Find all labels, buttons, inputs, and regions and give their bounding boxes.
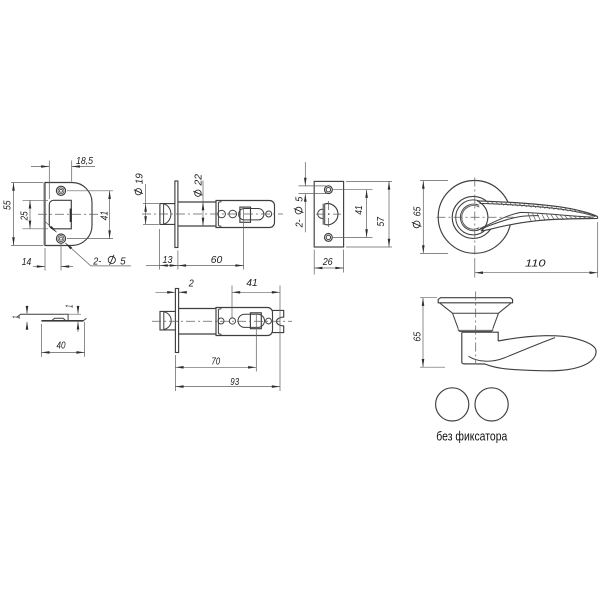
svg-text:без фиксатора: без фиксатора [436,428,508,443]
svg-text:41: 41 [100,211,111,221]
svg-text:26: 26 [322,257,333,268]
svg-text:25: 25 [20,211,31,221]
svg-text:13: 13 [163,255,173,266]
svg-text:65: 65 [412,332,423,342]
svg-text:1: 1 [64,305,75,309]
svg-text:14: 14 [22,257,32,268]
svg-text:93: 93 [230,377,239,388]
svg-text:5: 5 [120,256,126,267]
svg-text:55: 55 [3,200,14,210]
svg-text:60: 60 [211,255,223,266]
svg-text:65: 65 [412,206,423,216]
svg-text:18,5: 18,5 [76,156,93,167]
svg-text:41: 41 [246,278,257,289]
svg-text:70: 70 [211,357,220,368]
svg-text:40: 40 [57,341,66,352]
svg-text:5: 5 [294,197,305,202]
svg-text:110: 110 [525,259,546,270]
svg-text:41: 41 [354,205,365,214]
svg-text:2-: 2- [294,219,305,228]
svg-text:1: 1 [11,316,22,320]
svg-text:57: 57 [376,216,387,226]
svg-text:2: 2 [188,278,194,289]
svg-text:22: 22 [194,174,205,187]
svg-text:19: 19 [134,173,145,184]
svg-text:2-: 2- [92,256,101,267]
